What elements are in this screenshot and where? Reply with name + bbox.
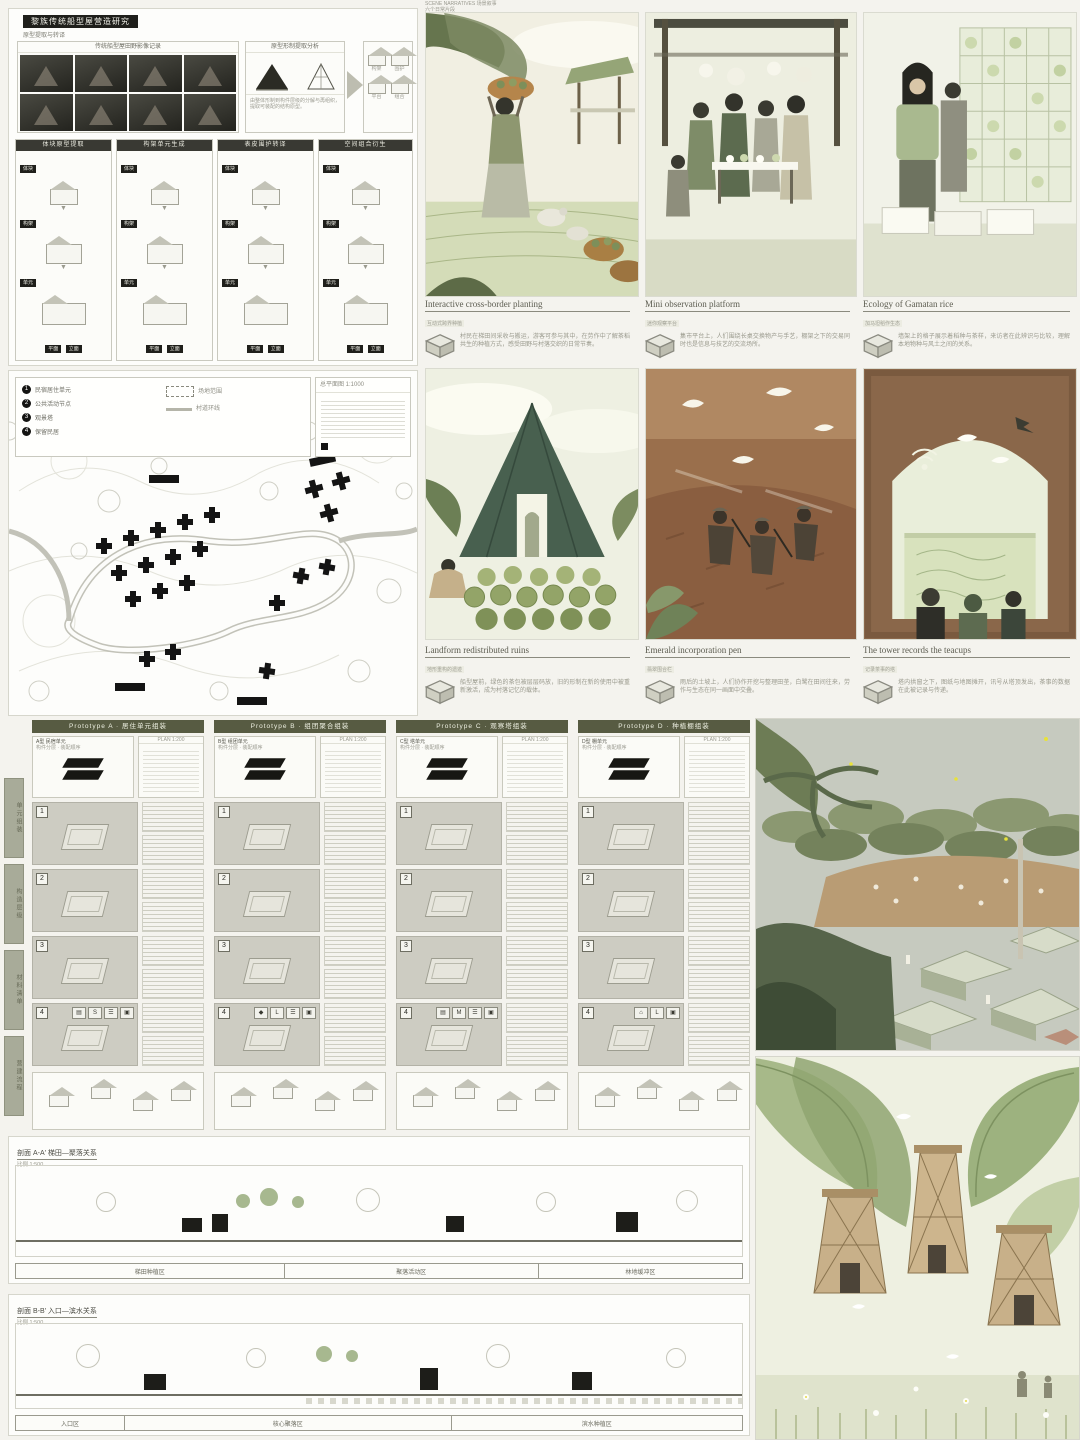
field-photo [129,55,182,92]
caption-title: Interactive cross-border planting [425,299,630,312]
step-card: 2 [578,869,684,932]
black-axon-icon [607,755,651,785]
photo-grid-box: 传统船型屋田野影像记录 [17,41,239,133]
harvest-scene-art [426,13,638,296]
step-card: 3 [396,936,502,999]
cluster-sketch-card [214,1072,386,1130]
axon-sketch: 构架 [366,46,387,72]
stage-chip: 单元 [121,279,137,287]
caption-sub: 互动式跨界种植 [425,320,464,327]
stage-chip: 体块 [323,165,339,173]
caption-desc: 船型屋前，绿色的茶包被层层码放，旧的形制在新的使用中被重新激活，成为村落记忆的载… [460,679,630,705]
transform-col-header: 体块原型提取 [16,140,111,151]
caption-title: Landform redistributed ruins [425,645,630,658]
step-card: 4 ⌂L▣ [578,1003,684,1066]
list-icon: ☰ [104,1007,118,1019]
kit-icon: ▣ [302,1007,316,1019]
size-letter: S [88,1007,102,1019]
list-icon: ☰ [468,1007,482,1019]
side-index-1: 单元组装 [4,778,24,858]
section-title: 剖面 B-B′ 入口—滨水关系 [17,1306,97,1318]
caption-desc: 墙架上的格子展示着稻种与茶样，来访者在此辨识与比较，理解本地物种与风土之间的关系… [898,333,1070,359]
render-aerial-village [755,718,1080,1051]
kit-icon: ▣ [120,1007,134,1019]
legend-item: 3观景塔 [22,410,304,424]
size-letter: L [270,1007,284,1019]
research-panel: 黎族传统船型屋营造研究 原型提取与转译 传统船型屋田野影像记录 原型形制提取分析 [8,8,418,366]
step-card: 3 [32,936,138,999]
stage-chip: 体块 [20,165,36,173]
aframe-hut-art [426,369,638,639]
caption-title: Emerald incorporation pen [645,645,850,658]
transform-col-header: 空间组合衍生 [319,140,412,151]
step-card: 4 ▤M☰▣ [396,1003,502,1066]
section-dimension-bar: 入口区 核心聚落区 滨水种植区 [15,1415,743,1431]
arrow-right-icon [347,71,363,99]
cluster-sketch-card [32,1072,204,1130]
caption-desc: 雨后的土坡上，人们协作开挖与整理田垄，白鹭在田间往来，劳作与生态在同一画面中交叠… [680,679,850,705]
market-stall-art [646,13,856,296]
presentation-board: 黎族传统船型屋营造研究 原型提取与转译 传统船型屋田野影像记录 原型形制提取分析 [0,0,1080,1440]
plan-card: PLAN 1:200 [684,736,750,798]
form-analysis-box: 原型形制提取分析 由整体形制到构件层级的分解与再组织，提取可装配的结构原型。 [245,41,345,133]
type-card: B型 组团单元 构件分层 · 装配顺序 [214,736,316,798]
dim-segment: 滨水种植区 [452,1416,742,1430]
leaf-towers-art [756,1057,1079,1439]
section-drawing [15,1165,743,1257]
shelf-wall-art [864,13,1076,296]
legend-item: 4保留民居 [22,424,304,438]
assembly-col-header: Prototype A · 居住单元组装 [32,720,204,733]
translation-sketch-box: 构架 围护 平台 组合 [363,41,413,133]
stage-chip: 构架 [323,220,339,228]
home-icon: ⌂ [634,1007,648,1019]
research-subtitle: 原型提取与转译 [23,30,65,39]
transform-col-header: 构架单元生成 [117,140,212,151]
stage-chip: 构架 [222,220,238,228]
list-icon: ☰ [286,1007,300,1019]
assembly-col-header: Prototype C · 观察塔组装 [396,720,568,733]
section-dimension-bar: 梯田种植区 聚落活动区 林地缓冲区 [15,1263,743,1279]
size-badge-strip: ▤M☰▣ [436,1007,498,1019]
caption-block-6: The tower records the teacups 记录茶事的塔 塔内拱… [863,645,1070,705]
caption-sub: 地形重构的遗迹 [425,666,464,673]
step-card: 1 [214,802,320,865]
stage-chip: 单元 [222,279,238,287]
axon-cube-icon [863,679,893,705]
hut-solid-diagram [255,63,289,91]
type-card: A型 民宿单元 构件分层 · 装配顺序 [32,736,134,798]
plan-chip: 平面 [45,345,61,353]
stage-chip: 构架 [20,220,36,228]
axon-cube-icon [425,333,455,359]
step-card: 2 [32,869,138,932]
dim-segment: 聚落活动区 [285,1264,539,1278]
elev-chip: 立面 [268,345,284,353]
step-card: 4 ▤S☰▣ [32,1003,138,1066]
excavation-art [646,369,856,639]
assembly-col-header: Prototype D · 种植棚组装 [578,720,750,733]
field-photo [75,55,128,92]
field-photo [184,94,237,131]
axon-cube-icon [863,333,893,359]
step-card: 2 [396,869,502,932]
plan-card: PLAN 1:200 [320,736,386,798]
legend-samples: 场地范围 村道环线 [166,386,222,413]
dim-segment: 入口区 [16,1416,125,1430]
plan-legend: 1民宿居住单元 2公共活动节点 3观景塔 4保留民居 场地范围 村道环线 [15,377,311,457]
side-index-2: 构造层级 [4,864,24,944]
dim-segment: 林地缓冲区 [539,1264,742,1278]
side-index-3: 材料清单 [4,950,24,1030]
transform-col-3: 表皮围护转译 体块 ▼ 构架 ▼ 单元 平面 立面 [217,139,314,361]
assembly-column-4: Prototype D · 种植棚组装 D型 棚单元 构件分层 · 装配顺序 P… [578,720,750,1132]
assembly-column-1: Prototype A · 居住单元组装 A型 民宿单元 构件分层 · 装配顺序… [32,720,204,1132]
elev-chip: 立面 [167,345,183,353]
black-axon-icon [61,755,105,785]
type-card: D型 棚单元 构件分层 · 装配顺序 [578,736,680,798]
scene-illustration-3 [863,12,1077,297]
cluster-sketch-card [578,1072,750,1130]
section-drawing [15,1323,743,1409]
stage-chip: 体块 [121,165,137,173]
axon-cube-icon [645,333,675,359]
scene-illustration-1 [425,12,639,297]
section-title: 剖面 A-A′ 梯田—聚落关系 [17,1148,97,1160]
plan-note-box: 总平面图 1:1000 [315,377,411,457]
site-plan-panel: 1民宿居住单元 2公共活动节点 3观景塔 4保留民居 场地范围 村道环线 总平面… [8,370,418,716]
research-title: 黎族传统船型屋营造研究 [23,15,138,28]
cluster-sketch-card [396,1072,568,1130]
caption-title: The tower records the teacups [863,645,1070,658]
caption-sub: 加马坦稻作生态 [863,320,902,327]
dim-segment: 梯田种植区 [16,1264,285,1278]
sheet-icon: ◆ [254,1007,268,1019]
step-card: 1 [32,802,138,865]
axon-sketch: 组合 [389,74,410,100]
field-photo [20,94,73,131]
caption-sub: 记录茶事的塔 [863,666,897,673]
elev-chip: 立面 [368,345,384,353]
aerial-village-art [756,719,1079,1050]
caption-sub: 翡翠围合栏 [645,666,674,673]
size-letter: L [650,1007,664,1019]
caption-block-4: Landform redistributed ruins 地形重构的遗迹 船型屋… [425,645,630,705]
type-card: C型 塔单元 构件分层 · 装配顺序 [396,736,498,798]
field-photo [184,55,237,92]
photo-grid [18,53,238,133]
scene-illustration-4 [425,368,639,640]
step-card: 1 [578,802,684,865]
photo-grid-header: 传统船型屋田野影像记录 [18,42,238,53]
size-letter: M [452,1007,466,1019]
legend-item: 1民宿居住单元 [22,382,304,396]
step-card: 1 [396,802,502,865]
black-axon-icon [425,755,469,785]
plan-card: PLAN 1:200 [138,736,204,798]
stage-chip: 构架 [121,220,137,228]
caption-title: Ecology of Gamatan rice [863,299,1070,312]
hut-outline-diagram [306,63,336,91]
plan-card: PLAN 1:200 [502,736,568,798]
form-analysis-header: 原型形制提取分析 [246,42,344,53]
caption-desc: 塔内拱窗之下，图纸与地图摊开，讯号从塔顶发出，茶事的数据在此被记录与传递。 [898,679,1070,705]
sheet-icon: ▤ [72,1007,86,1019]
caption-sub: 迷你观察平台 [645,320,679,327]
kit-icon: ▣ [484,1007,498,1019]
step-card: 2 [214,869,320,932]
dim-segment: 核心聚落区 [125,1416,452,1430]
stage-chip: 单元 [323,279,339,287]
elev-chip: 立面 [66,345,82,353]
caption-title: Mini observation platform [645,299,850,312]
step-card: 4 ◆L☰▣ [214,1003,320,1066]
size-badge-strip: ▤S☰▣ [72,1007,134,1019]
field-photo [75,94,128,131]
side-index-4: 营建流程 [4,1036,24,1116]
legend-item: 2公共活动节点 [22,396,304,410]
scene-illustration-5 [645,368,857,640]
form-analysis-note: 由整体形制到构件层级的分解与再组织，提取可装配的结构原型。 [246,94,344,113]
axon-sketch: 平台 [366,74,387,100]
scene-illustration-2 [645,12,857,297]
plan-chip: 平面 [146,345,162,353]
field-photo [129,94,182,131]
section-panel-1: 剖面 A-A′ 梯田—聚落关系 比例 1:500 梯田种植区 聚落活动区 林地缓… [8,1136,750,1284]
stage-chip: 单元 [20,279,36,287]
caption-desc: 集市平台上，人们围绕长桌交换物产与手艺，棚架之下的交易同时也是信息与技艺的交流场… [680,333,850,359]
transform-col-2: 构架单元生成 体块 ▼ 构架 ▼ 单元 平面 立面 [116,139,213,361]
caption-block-5: Emerald incorporation pen 翡翠围合栏 雨后的土坡上，人… [645,645,850,705]
render-leaf-towers [755,1056,1080,1440]
sheet-icon: ▤ [436,1007,450,1019]
caption-block-1: Interactive cross-border planting 互动式跨界种… [425,299,630,359]
axon-cube-icon [425,679,455,705]
assembly-column-2: Prototype B · 组团聚合组装 B型 组团单元 构件分层 · 装配顺序… [214,720,386,1132]
black-axon-icon [243,755,287,785]
caption-block-3: Ecology of Gamatan rice 加马坦稻作生态 墙架上的格子展示… [863,299,1070,359]
size-badge-strip: ◆L☰▣ [254,1007,316,1019]
caption-desc: 村民在梯田间采收与搬运，游客可参与其中，在劳作中了解茶稻共生的种植方式，感受田野… [460,333,630,359]
caption-block-2: Mini observation platform 迷你观察平台 集市平台上，人… [645,299,850,359]
axon-cube-icon [645,679,675,705]
field-photo [20,55,73,92]
plan-chip: 平面 [347,345,363,353]
kit-icon: ▣ [666,1007,680,1019]
assembly-col-header: Prototype B · 组团聚合组装 [214,720,386,733]
axon-sketch: 围护 [389,46,410,72]
transform-col-1: 体块原型提取 体块 ▼ 构架 ▼ 单元 平面 立面 [15,139,112,361]
stage-chip: 体块 [222,165,238,173]
size-badge-strip: ⌂L▣ [634,1007,680,1019]
assembly-column-3: Prototype C · 观察塔组装 C型 塔单元 构件分层 · 装配顺序 P… [396,720,568,1132]
scene-illustration-6 [863,368,1077,640]
transform-col-4: 空间组合衍生 体块 ▼ 构架 ▼ 单元 平面 立面 [318,139,413,361]
transform-col-header: 表皮围护转译 [218,140,313,151]
plan-scale-note: 总平面图 1:1000 [316,378,410,393]
step-card: 3 [214,936,320,999]
plan-chip: 平面 [247,345,263,353]
step-card: 3 [578,936,684,999]
section-panel-2: 剖面 B-B′ 入口—滨水关系 比例 1:500 入口区 核心聚落区 滨水种植区 [8,1294,750,1436]
arch-window-art [864,369,1076,639]
